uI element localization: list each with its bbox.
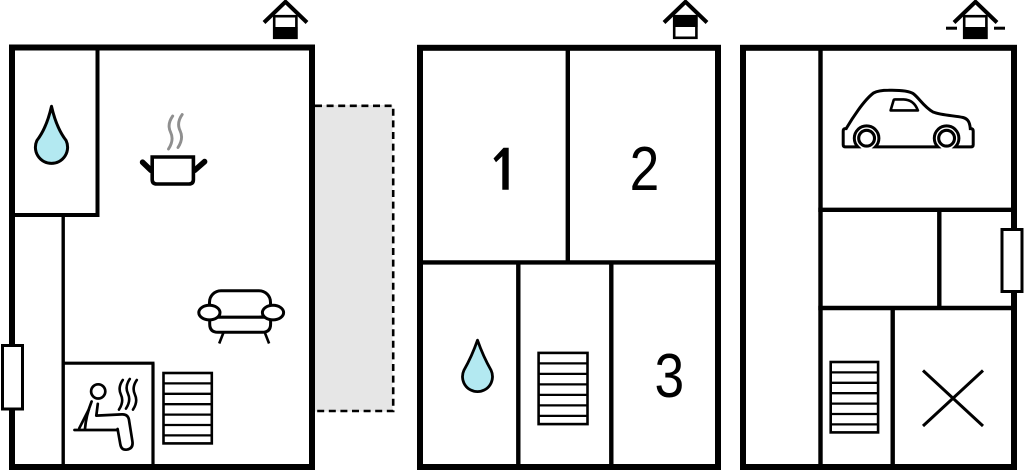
svg-text:3: 3 [654, 342, 684, 411]
svg-text:2: 2 [630, 135, 660, 204]
